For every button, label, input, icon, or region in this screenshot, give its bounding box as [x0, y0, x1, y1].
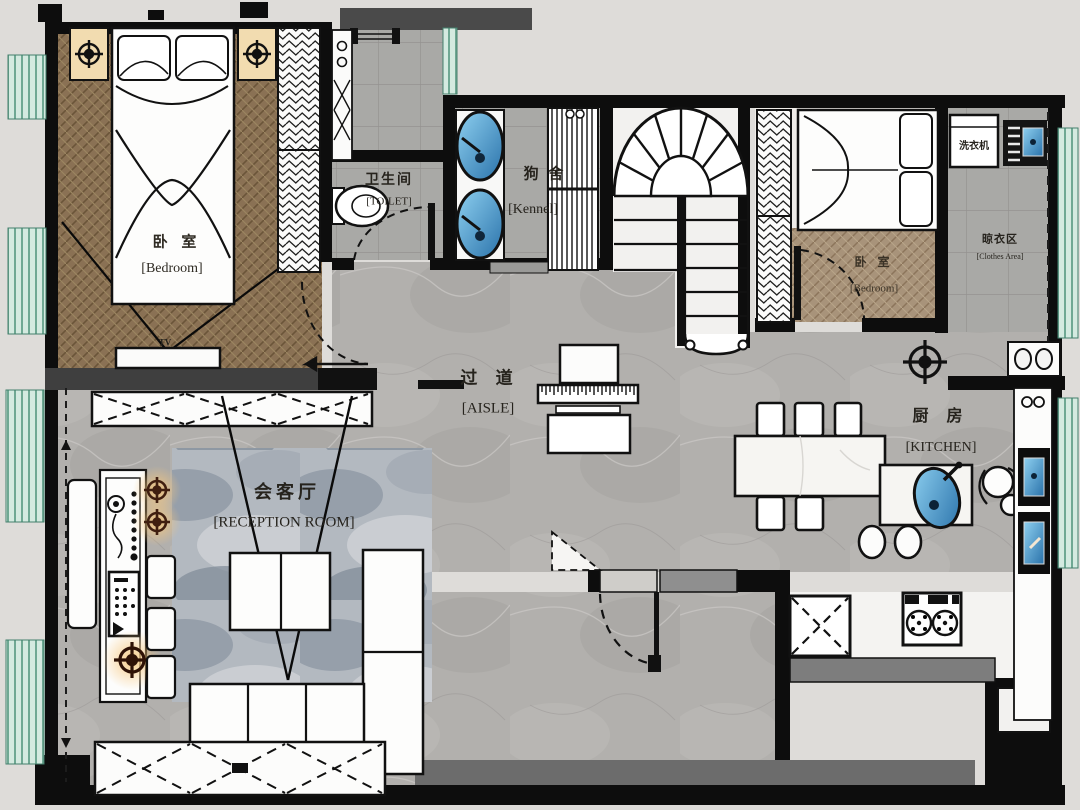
tv-label: TV	[159, 339, 172, 348]
dining-chair	[835, 403, 861, 436]
aisle-label-en: [AISLE]	[462, 402, 515, 417]
dining-chair	[796, 497, 823, 530]
floor-plan: 卧 室 [Bedroom] 卫生间 [TOILET] 狗 舍 [Kennel] …	[0, 0, 1080, 810]
cabinet-x	[790, 596, 850, 656]
bedroom-left-label-zh: 卧 室	[153, 236, 202, 251]
reception-label-zh: 会客厅	[254, 483, 320, 501]
piano-bench	[560, 345, 618, 383]
side-table	[147, 656, 175, 698]
bedroom-left-label-en: [Bedroom]	[141, 262, 202, 276]
pillow	[118, 36, 170, 80]
window-left-2	[8, 228, 46, 334]
pillow	[176, 36, 228, 80]
kennel-label-zh: 狗 舍	[524, 168, 567, 183]
door-leaf	[654, 592, 659, 666]
side-table	[147, 608, 175, 650]
aisle-label-zh: 过 道	[460, 370, 519, 387]
clothes-area-label-en: [Clothes Area]	[977, 253, 1024, 261]
window-left-4	[6, 640, 44, 764]
window-entry	[443, 28, 457, 94]
kitchen-label-zh: 厨 房	[912, 409, 969, 425]
bedroom-right-label-zh: 卧 室	[854, 256, 893, 268]
dining-chair	[757, 403, 784, 436]
bench	[68, 480, 96, 628]
dining-chair	[757, 497, 784, 530]
kennel-label-en: [Kennel]	[508, 203, 558, 217]
stool	[895, 526, 921, 558]
pillow	[900, 114, 932, 168]
pet-wash-basin	[457, 190, 503, 258]
piano	[538, 385, 638, 403]
pet-wash-basin	[457, 112, 503, 180]
dining-chair	[795, 403, 823, 436]
tv-cabinet	[116, 348, 220, 368]
washing-machine-label: 洗衣机	[959, 142, 989, 152]
toilet-label-en: [TOILET]	[366, 197, 412, 208]
stool	[859, 526, 885, 558]
clothes-area-label-zh: 晾衣区	[982, 235, 1018, 246]
window-left-3	[6, 390, 44, 522]
window-right-1	[1058, 128, 1078, 338]
reception-label-en: [RECEPTION ROOM]	[213, 516, 354, 531]
bedroom-right-label-en: [Bedroom]	[850, 284, 898, 295]
sofa-right	[363, 550, 423, 774]
pillow	[900, 172, 932, 226]
window-left-1	[8, 55, 46, 119]
dining-table	[735, 436, 885, 496]
kitchen-label-en: [KITCHEN]	[906, 441, 977, 455]
floor-plan-drawing	[0, 0, 1080, 810]
window-right-2	[1058, 398, 1078, 568]
toilet-label-zh: 卫生间	[365, 174, 413, 188]
entry-floor	[345, 28, 443, 152]
side-table	[147, 556, 175, 598]
